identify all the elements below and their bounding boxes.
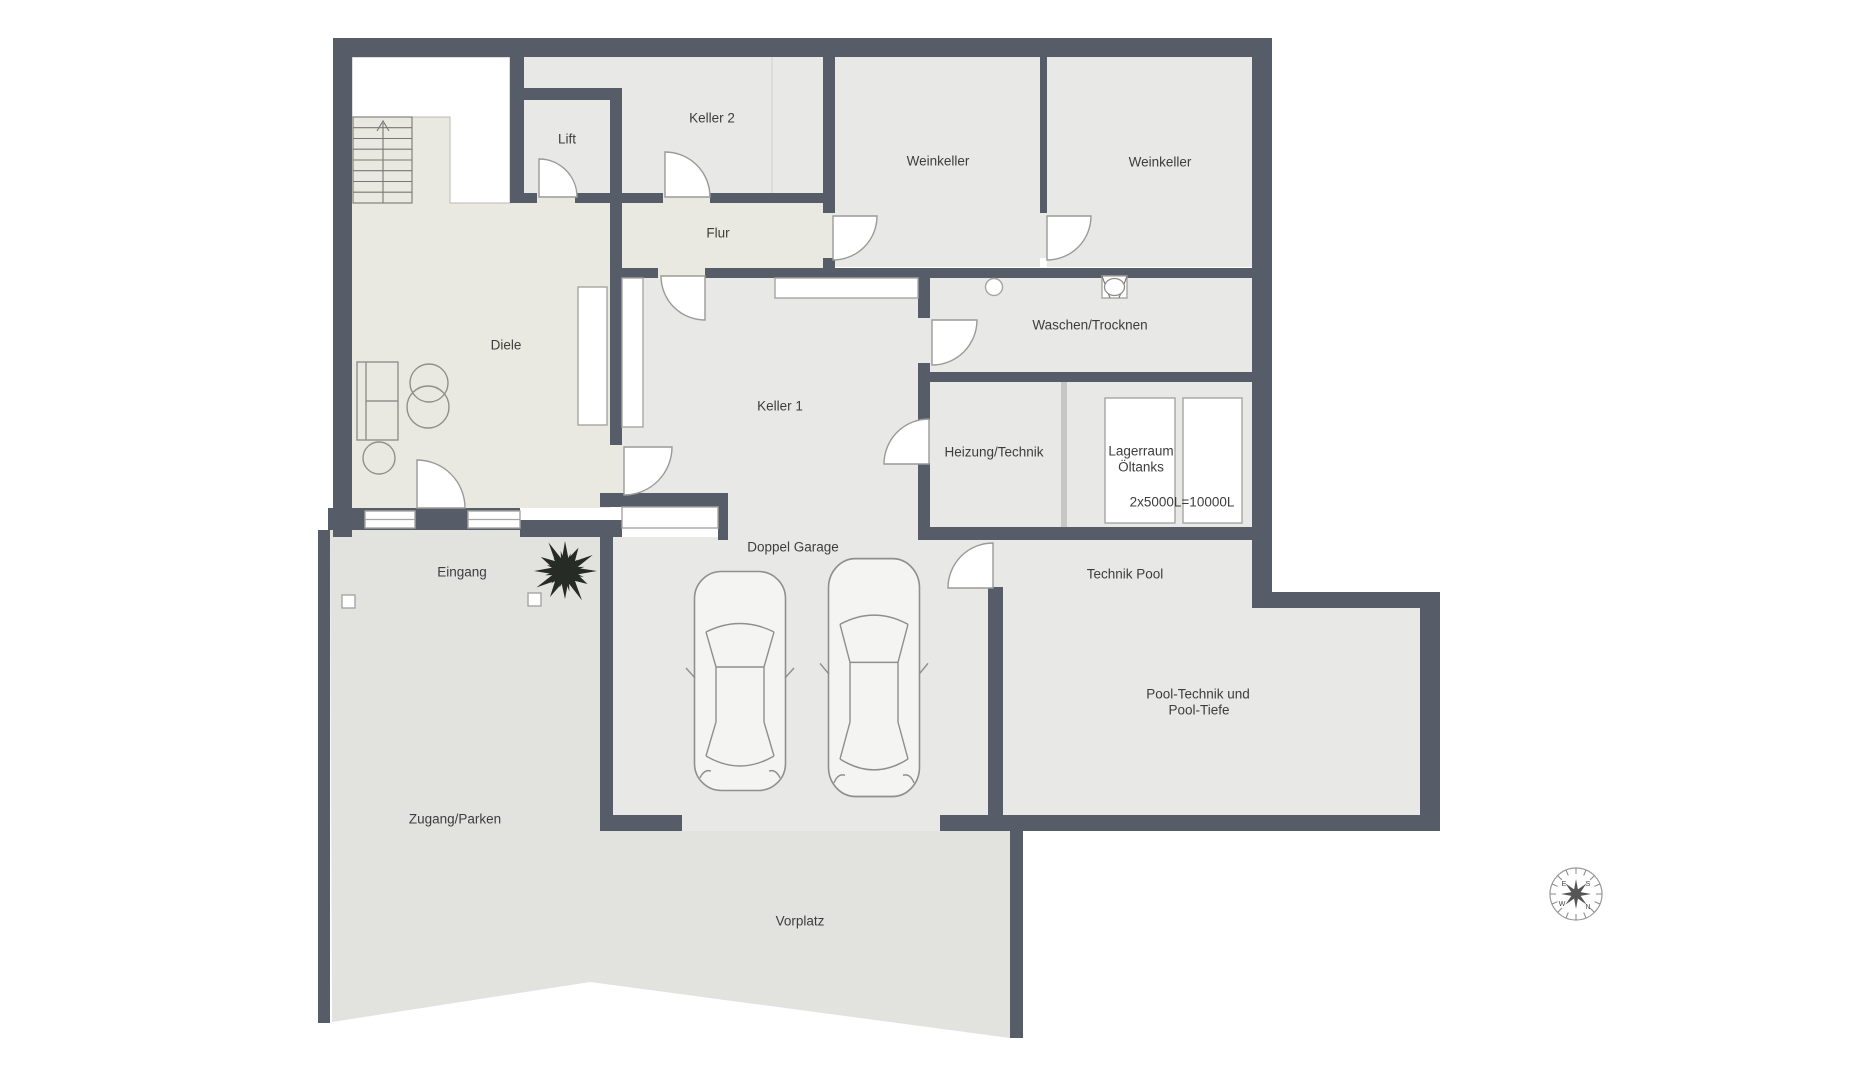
wall-waschen-bottom: [918, 372, 1252, 382]
label-lift: Lift: [558, 132, 576, 147]
car-icon: [820, 559, 928, 797]
wall-stair-lift: [510, 57, 524, 203]
wall-right-outer: [1252, 38, 1272, 608]
compass-rose-icon: E S W N: [1550, 868, 1602, 920]
label-tank-capacity: 2x5000L=10000L: [1130, 495, 1235, 510]
floorplan-page: E S W N Lift Keller 2 Weinkeller Weinkel…: [0, 0, 1849, 1080]
wall-pool-bottom: [940, 815, 1440, 831]
washing-machine-icon: [1102, 276, 1127, 298]
label-weinkeller-left: Weinkeller: [907, 154, 970, 169]
floor-garage: [613, 537, 988, 815]
label-oeltanks: Öltanks: [1118, 460, 1164, 475]
wall-garage-stub: [718, 493, 728, 540]
label-keller1: Keller 1: [757, 399, 803, 414]
sink-icon: [986, 279, 1003, 296]
wall-keller1-right-1: [918, 278, 930, 318]
wall-flur-top-3: [710, 193, 835, 203]
label-technik-pool: Technik Pool: [1087, 567, 1164, 582]
wall-weinkeller-partition: [1040, 55, 1047, 213]
wall-mid-2: [705, 268, 1270, 278]
label-lagerraum: Lagerraum: [1108, 444, 1173, 459]
threshold-waschen: [918, 318, 930, 363]
label-pool-technik: Pool-Technik und: [1146, 687, 1250, 702]
cabinet-keller1-side: [622, 278, 643, 427]
wall-weinkeller-left-stub: [823, 258, 835, 278]
wall-weinkeller-left: [823, 55, 835, 213]
wall-pool-right-outer: [1420, 592, 1440, 830]
label-doppel-garage: Doppel Garage: [747, 540, 839, 555]
wall-top-outer: [333, 38, 1272, 57]
label-diele: Diele: [491, 338, 522, 353]
cabinet-garage: [622, 507, 718, 528]
floor-garage-keller1-opening: [728, 493, 918, 537]
compass-east-label: E: [1562, 881, 1567, 888]
label-heizung-technik: Heizung/Technik: [944, 445, 1043, 460]
post-left: [342, 595, 355, 608]
post-right: [528, 593, 541, 606]
car-icon: [686, 572, 794, 791]
wall-left-outer: [333, 38, 352, 537]
label-eingang: Eingang: [437, 565, 487, 580]
label-keller2: Keller 2: [689, 111, 735, 126]
label-flur: Flur: [706, 226, 730, 241]
wall-vorplatz-right: [1010, 831, 1023, 1038]
wall-lift-top: [510, 88, 622, 100]
threshold-diele-keller1: [610, 445, 622, 493]
label-weinkeller-right: Weinkeller: [1129, 155, 1192, 170]
wall-lift-right: [610, 88, 622, 203]
label-waschen-trocknen: Waschen/Trocknen: [1032, 318, 1147, 333]
compass-south-label: S: [1586, 881, 1591, 888]
wall-keller1-bottom: [600, 493, 728, 507]
wall-garage-left: [600, 523, 613, 831]
cabinet-keller1-top: [775, 278, 918, 298]
label-zugang-parken: Zugang/Parken: [409, 812, 501, 827]
compass-west-label: W: [1559, 901, 1566, 908]
wall-keller1-right-3: [918, 463, 930, 540]
wall-outdoor-left: [318, 530, 330, 1023]
wall-garage-right: [988, 587, 1003, 815]
floor-pool: [1003, 540, 1420, 815]
wall-heizung-lagerraum-partition: [1061, 382, 1067, 527]
wall-diele-keller1: [610, 203, 622, 445]
compass-north-label: N: [1585, 904, 1590, 911]
cabinet-diele: [578, 287, 607, 425]
floor-garage-door-gap: [682, 815, 940, 831]
wall-pool-step: [1252, 592, 1440, 608]
wall-pool-top: [918, 527, 1252, 540]
wall-keller1-right-2: [918, 363, 930, 420]
label-pool-tiefe: Pool-Tiefe: [1168, 703, 1229, 718]
label-vorplatz: Vorplatz: [776, 914, 825, 929]
threshold-weinkeller-partition: [1040, 213, 1047, 258]
floorplan-drawing: E S W N Lift Keller 2 Weinkeller Weinkel…: [0, 0, 1849, 1080]
